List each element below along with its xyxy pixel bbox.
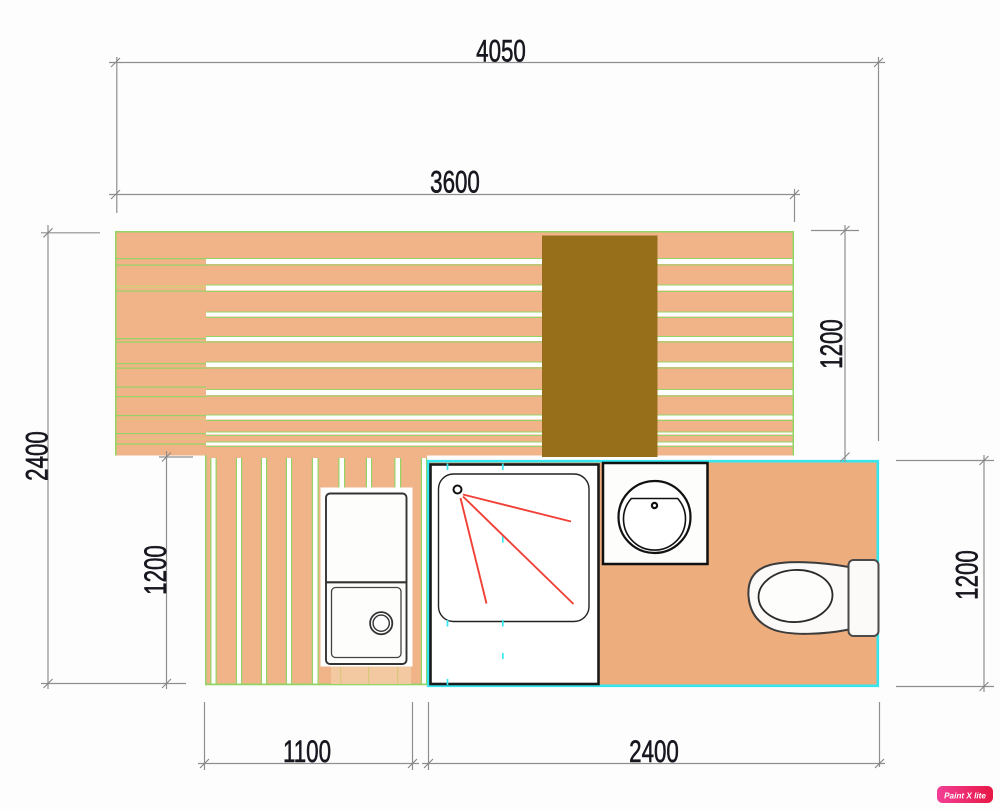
svg-text:2400: 2400 (629, 733, 679, 769)
svg-text:1200: 1200 (137, 545, 173, 595)
svg-text:1200: 1200 (813, 319, 849, 369)
svg-text:1100: 1100 (283, 733, 331, 769)
svg-text:1200: 1200 (949, 550, 985, 600)
svg-text:3600: 3600 (430, 164, 480, 200)
svg-text:Paint X lite: Paint X lite (944, 792, 986, 801)
svg-text:2400: 2400 (19, 431, 55, 481)
svg-text:4050: 4050 (476, 33, 526, 69)
